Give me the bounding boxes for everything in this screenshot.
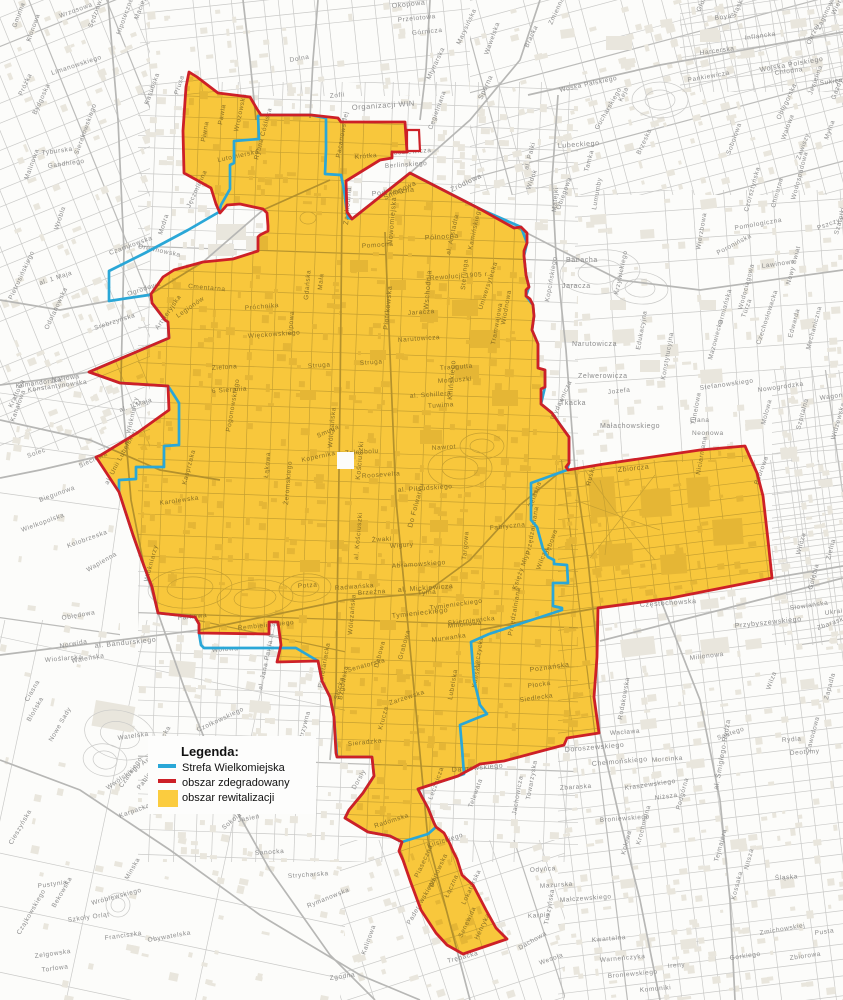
svg-text:Rydla: Rydla [782,736,802,744]
svg-text:Elana: Elana [690,417,710,424]
svg-text:Zelwerowicza: Zelwerowicza [578,373,628,380]
svg-text:Legenda:: Legenda: [181,744,239,759]
svg-text:Banacha: Banacha [566,257,598,264]
svg-text:Jaracza: Jaracza [562,283,591,290]
svg-text:Tkacka: Tkacka [560,400,586,407]
svg-text:obszar zdegradowany: obszar zdegradowany [182,777,290,789]
svg-text:Narutowicza: Narutowicza [572,341,617,348]
svg-text:Neonowa: Neonowa [692,430,724,437]
svg-text:obszar rewitalizacji: obszar rewitalizacji [182,792,274,804]
svg-text:Strefa Wielkomiejska: Strefa Wielkomiejska [182,762,286,774]
svg-text:Małachowskiego: Małachowskiego [600,423,660,430]
